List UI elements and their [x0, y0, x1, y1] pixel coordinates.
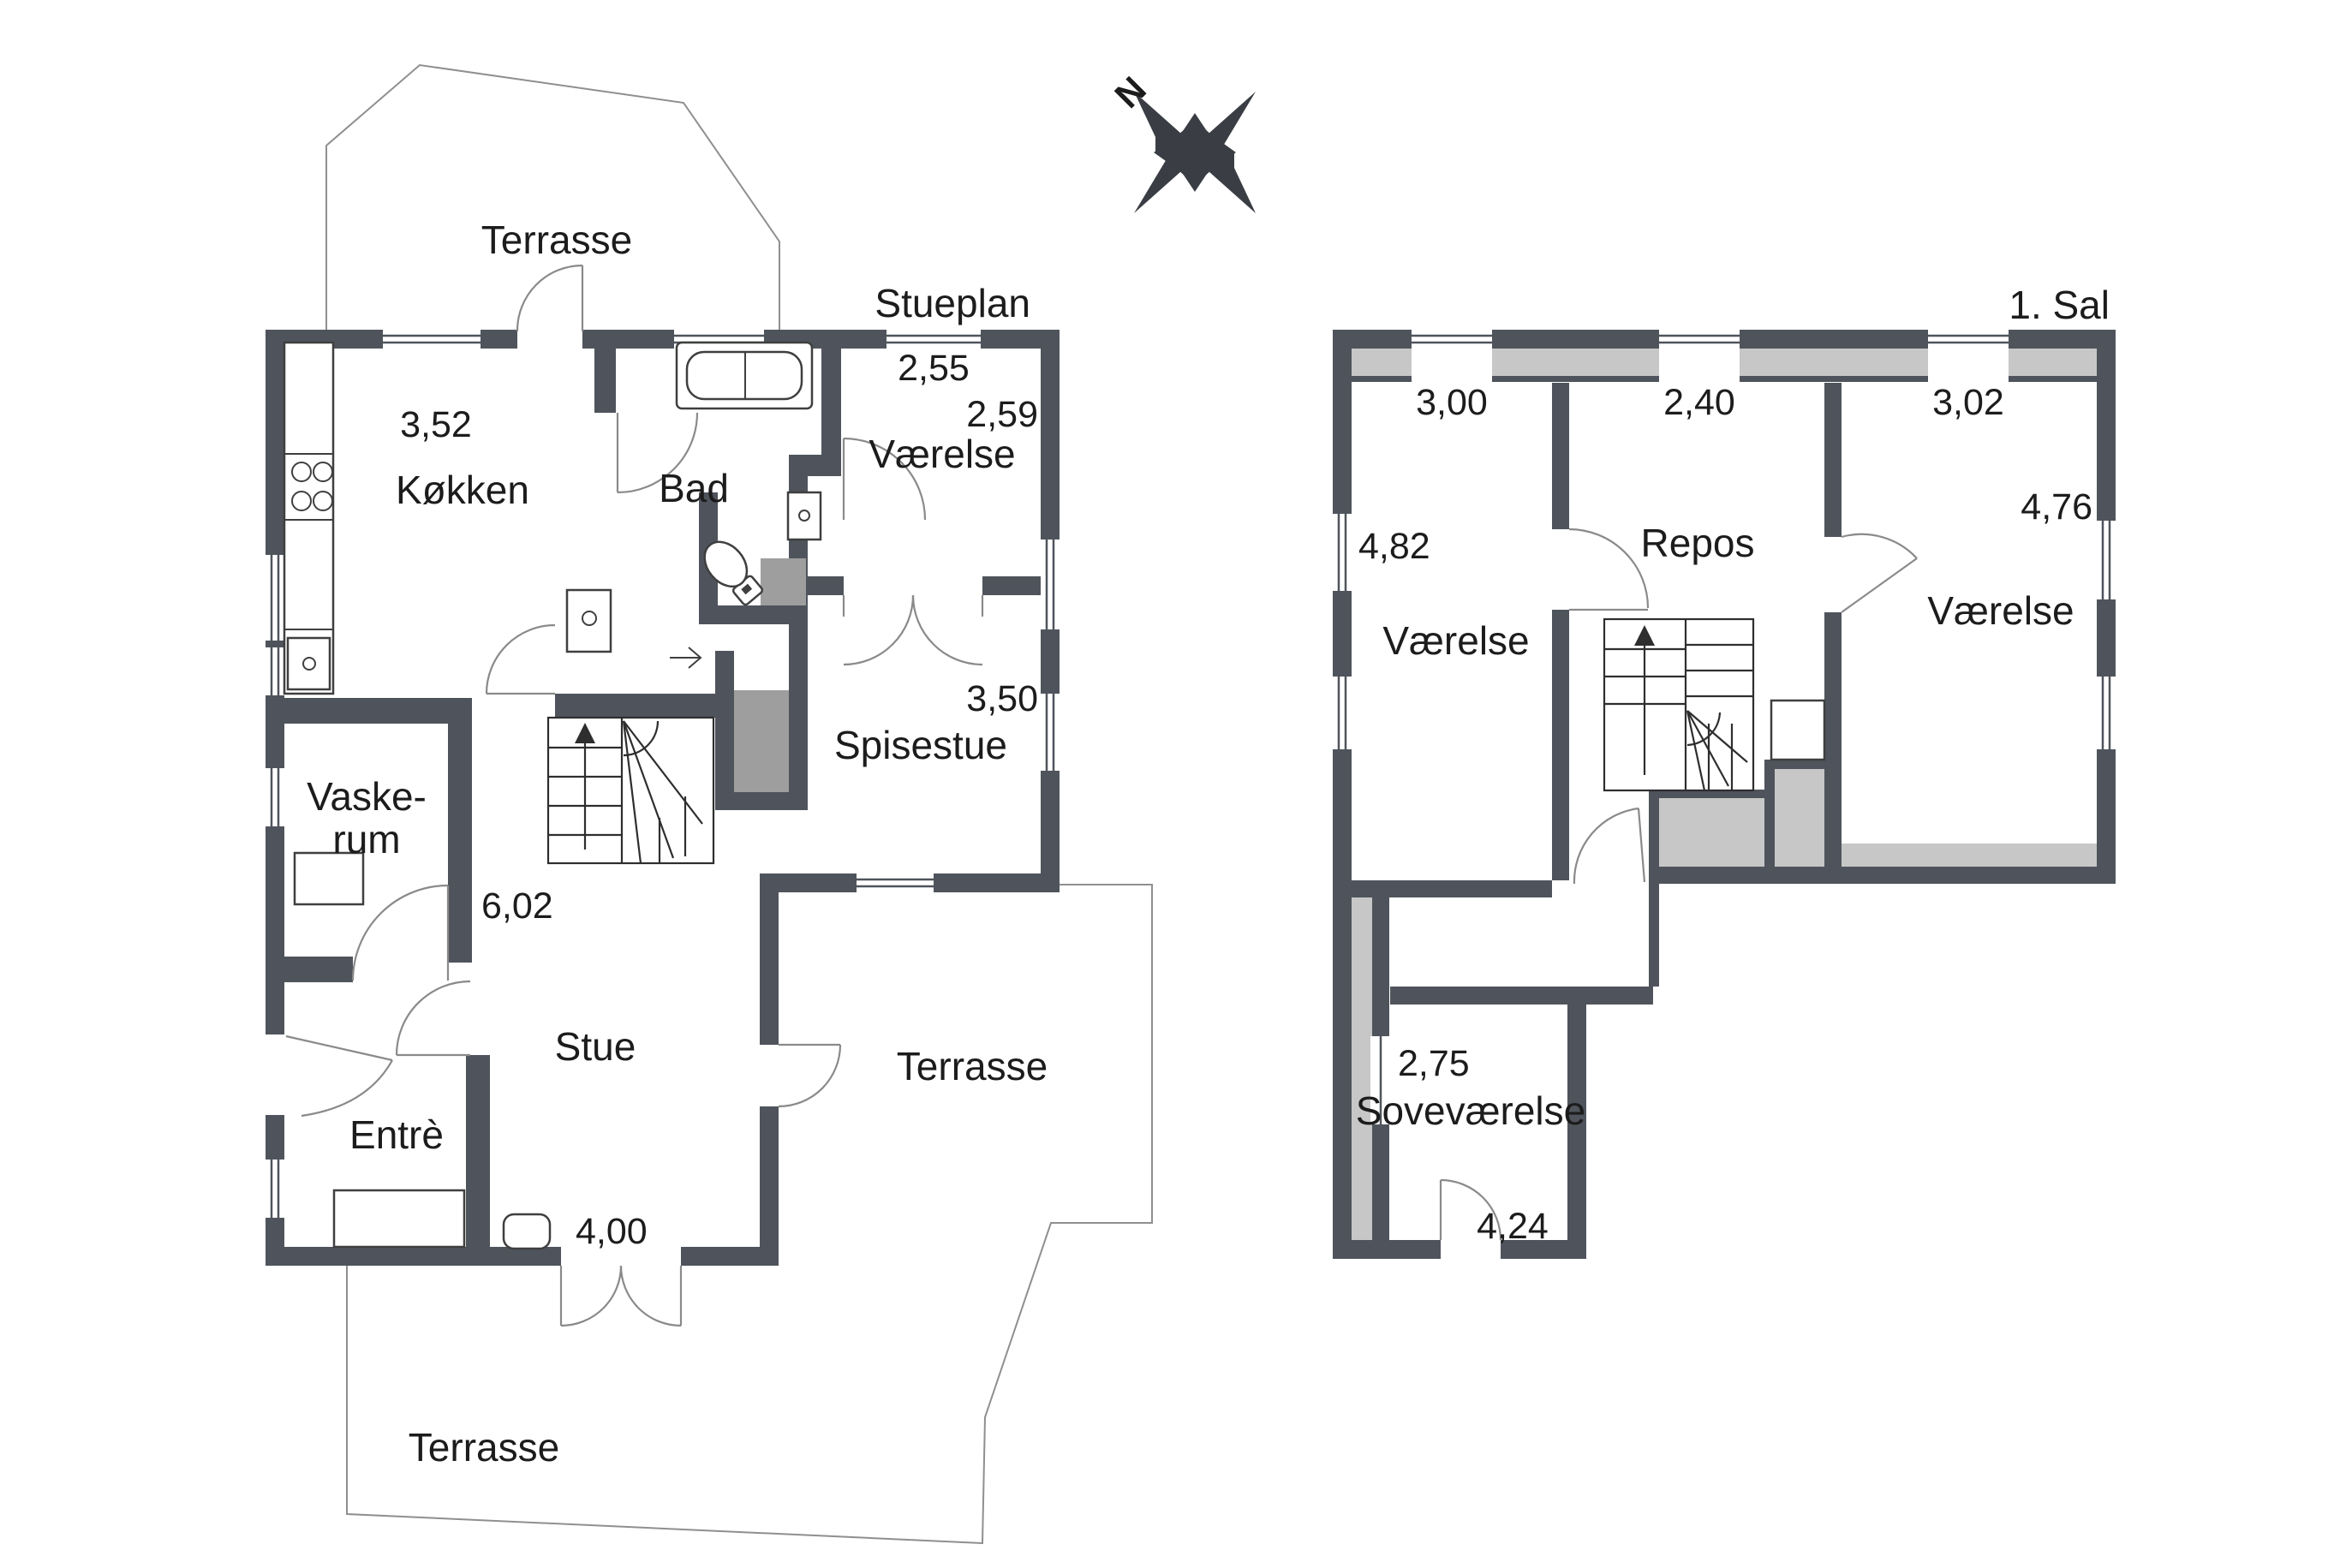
gf-window-dining-south	[857, 873, 934, 892]
ff-door-bedroom-left	[1569, 529, 1648, 610]
ff-wall-step-west	[1764, 760, 1775, 867]
ff-dim-master-width: 2,75	[1398, 1043, 1470, 1084]
ff-window-right-b	[2097, 677, 2116, 749]
gf-label-dining: Spisestue	[834, 723, 1007, 767]
entry-wardrobe	[334, 1190, 464, 1247]
gf-plan-title: Stueplan	[875, 281, 1030, 325]
gf-wall-shaft-south	[715, 792, 808, 810]
ff-gray-understair	[1659, 798, 1764, 867]
gf-label-kitchen: Køkken	[396, 468, 529, 512]
ff-plan-title: 1. Sal	[2009, 283, 2110, 327]
bath-sink-icon	[788, 492, 821, 540]
ff-window-top-right	[1928, 330, 2009, 382]
gf-window-bedroom-top	[886, 330, 981, 349]
gf-door-living-terrace-east	[760, 1045, 840, 1106]
ff-wall-lv-south	[1333, 880, 1552, 897]
gf-window-kitchen-left-b	[266, 647, 284, 695]
ff-label-landing: Repos	[1641, 521, 1755, 565]
gf-dim-living-height: 6,02	[481, 885, 553, 927]
gf-window-dining-right	[1041, 694, 1060, 771]
gf-label-terrace-bottom: Terrasse	[409, 1425, 559, 1470]
gf-wall-shaft-west	[715, 651, 734, 810]
ff-window-right-a	[2097, 521, 2116, 599]
gf-door-entry-living	[397, 981, 470, 1055]
gf-wall-divider-a	[808, 576, 844, 595]
ff-dim-left: 3,00	[1416, 382, 1488, 423]
gf-label-laundry-2: rum	[332, 817, 400, 862]
gf-dim-bedroom-width: 2,55	[898, 348, 970, 389]
kitchen-counter	[284, 343, 333, 694]
gf-wall-divider-b	[982, 576, 1041, 595]
ff-door-bedroom-right	[1842, 534, 1917, 612]
ff-label-master: Soveværelse	[1356, 1088, 1585, 1133]
kitchen-island	[567, 590, 611, 652]
gf-window-bedroom-right	[1041, 540, 1060, 629]
gf-window-entry	[266, 1160, 284, 1218]
ff-window-left-a	[1333, 514, 1352, 591]
ff-dim-mid: 2,40	[1663, 382, 1735, 423]
kitchen-sink-icon	[288, 638, 330, 689]
gf-wall-entry-east	[466, 1055, 490, 1247]
gf-window-kitchen-top	[383, 330, 481, 349]
gf-label-bedroom: Værelse	[869, 432, 1015, 476]
wood-stove-icon	[504, 1214, 550, 1249]
gf-label-terrace-right: Terrasse	[897, 1044, 1048, 1088]
ff-wall-b-lower	[1824, 612, 1842, 867]
gf-dim-bedroom-depth: 2,59	[966, 394, 1038, 435]
gf-label-laundry-1: Vaske-	[307, 774, 427, 819]
first-floor-plan: 1. Sal 3,00 2,40 3,02 4,82 4,76 Værelse …	[1333, 283, 2116, 1259]
ff-wall-b-upper	[1824, 383, 1842, 537]
ff-dim-right: 3,02	[1932, 382, 2004, 423]
gf-wall-bottom	[266, 1247, 779, 1266]
gf-door-kitchen-hall	[487, 625, 555, 694]
ff-window-top-left	[1412, 330, 1492, 382]
gf-wall-bath-east	[821, 330, 841, 455]
ff-label-bedroom-left: Værelse	[1382, 618, 1529, 663]
ff-stairs	[1604, 619, 1753, 790]
ff-wall-left	[1333, 330, 1352, 1259]
gf-wall-kitchen-stub	[594, 330, 616, 413]
gf-label-entry: Entrè	[349, 1112, 444, 1157]
gf-wall-laundry-east	[448, 698, 472, 963]
ff-wall-a-lower	[1552, 610, 1569, 880]
gf-label-bath: Bad	[659, 466, 729, 510]
ff-gray-step	[1775, 769, 1824, 867]
terrace-top-outline	[326, 65, 779, 331]
ff-window-left-b	[1333, 677, 1352, 749]
gf-wall-laundry-north	[266, 698, 472, 724]
ff-door-master-hall	[1574, 808, 1645, 884]
gf-shaft-gray	[734, 690, 789, 792]
ground-floor-plan: Terrasse Stueplan 3,52 Køkken Bad 2,55 2…	[266, 65, 1152, 1543]
gf-dim-dining: 3,50	[966, 678, 1038, 719]
ff-dim-master-length: 4,24	[1477, 1206, 1549, 1247]
ff-window-top-mid	[1659, 330, 1740, 382]
ff-dim-depth-left: 4,82	[1358, 526, 1430, 567]
ff-closet	[1771, 701, 1824, 760]
gf-dim-living-width: 4,00	[576, 1211, 648, 1252]
gf-door-dining-french	[844, 595, 982, 665]
bathtub-icon	[677, 343, 812, 408]
ff-dim-depth-right: 4,76	[2021, 486, 2092, 528]
gf-stairs	[548, 718, 713, 863]
gf-wall-stair-north	[555, 694, 718, 718]
ff-gray-west-strip	[1352, 897, 1372, 1240]
gf-window-laundry	[266, 768, 284, 826]
gf-wall-bath-jog	[789, 455, 841, 476]
gf-door-living-terrace-south	[561, 1247, 681, 1326]
ff-wall-corridor-east	[1649, 790, 1659, 987]
gf-wall-laundry-south	[284, 957, 353, 982]
floorplan-page: N	[0, 0, 2352, 1568]
gf-shower-gray	[761, 558, 806, 605]
gf-dim-kitchen: 3,52	[400, 404, 472, 445]
compass-rose: N	[1107, 69, 1256, 213]
gf-window-kitchen-left-a	[266, 555, 284, 641]
ff-wall-a-upper	[1552, 383, 1569, 529]
hatch-arrow-icon	[670, 647, 701, 668]
floorplan-drawing: N	[0, 0, 2352, 1568]
gf-door-kitchen-terrace	[517, 265, 582, 349]
gf-label-living: Stue	[555, 1024, 636, 1069]
gf-door-laundry	[353, 885, 448, 981]
ff-wall-south-right	[1649, 867, 2116, 884]
ff-wall-right	[2097, 330, 2116, 884]
gf-label-terrace-top: Terrasse	[481, 218, 632, 262]
gf-front-door	[266, 1034, 392, 1116]
ff-wall-master-north	[1390, 987, 1653, 1005]
ff-label-bedroom-right: Værelse	[1927, 588, 2074, 633]
ff-gray-right-band	[1842, 844, 2097, 867]
ff-wall-step-top	[1764, 760, 1824, 769]
